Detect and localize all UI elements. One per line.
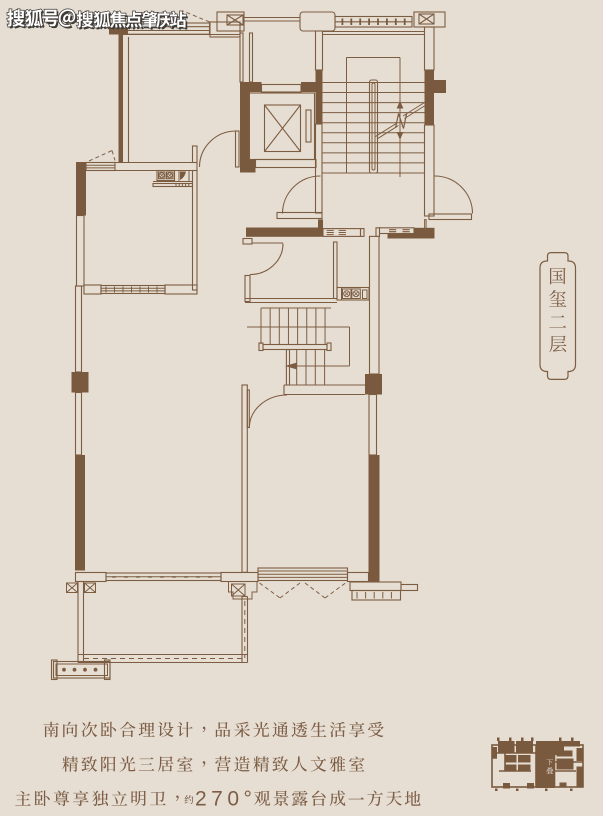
- svg-text:270°: 270°: [195, 788, 256, 811]
